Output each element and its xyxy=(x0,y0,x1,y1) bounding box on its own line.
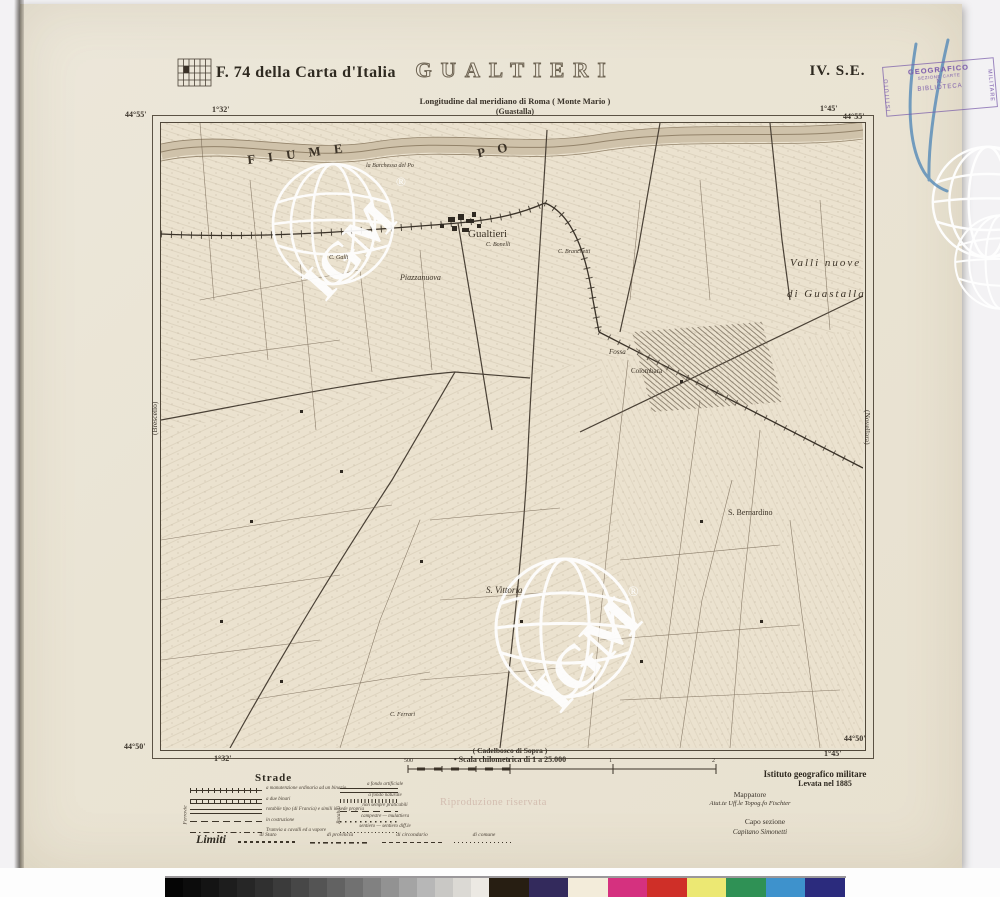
scale-tick: 2 xyxy=(712,758,715,764)
map-label: C. Galli xyxy=(329,255,348,261)
limiti-line-sample xyxy=(382,840,442,845)
credit-chief-name: Capitano Simonetti xyxy=(695,828,825,836)
adjacent-sheet-left: (Brescello) xyxy=(150,402,159,435)
gray-step xyxy=(165,878,183,897)
map-label: Colombara xyxy=(631,367,662,375)
corner-top-left-lon: 1°32' xyxy=(212,105,229,114)
limiti-label: di provincia xyxy=(310,832,370,838)
color-patch xyxy=(726,878,766,897)
map-title: GUALTIERI xyxy=(330,58,700,83)
map-label: S. Vittoria xyxy=(486,585,522,595)
gray-step xyxy=(327,878,345,897)
gray-step xyxy=(471,878,489,897)
gray-step xyxy=(273,878,291,897)
credit-institute: Istituto geografico militare xyxy=(730,769,900,779)
legend-strade-title: Strade xyxy=(255,772,292,784)
scale-tick: 1 xyxy=(609,758,612,764)
library-stamp: ISTITUTO GEOGRAFICO SEZIONE CARTE N. BIB… xyxy=(882,57,998,117)
legend-label: a fondo naturale xyxy=(340,793,430,798)
credit-mapper-title: Mappatore xyxy=(700,790,800,799)
legend-label: non sempre praticabili xyxy=(340,803,430,808)
map-label: S. Bernardino xyxy=(728,508,772,517)
scanned-map-page: IGM ® IGM ® F. 74 della C xyxy=(0,0,1000,897)
limiti-line-sample xyxy=(310,840,370,845)
map-label: Fossa xyxy=(609,348,626,356)
legend-line-sample xyxy=(190,820,262,825)
gray-step xyxy=(201,878,219,897)
gray-step xyxy=(255,878,273,897)
color-calibration-bar xyxy=(165,876,846,897)
gray-step xyxy=(183,878,201,897)
color-patch xyxy=(489,878,529,897)
gray-step xyxy=(363,878,381,897)
credit-mapper-name: Aiut.te Uff.le Topog.fo Fischter xyxy=(685,800,815,807)
gray-step xyxy=(435,878,453,897)
color-patch xyxy=(529,878,569,897)
adjacent-sheet-bottom: ( Cadelbosco di Sopra ) xyxy=(400,746,620,755)
quadrant-label: IV. S.E. xyxy=(790,63,885,80)
color-patch xyxy=(687,878,727,897)
corner-bottom-right-lon: 1°45' xyxy=(824,749,841,758)
limiti-line-sample xyxy=(454,840,514,845)
stamp-left: ISTITUTO xyxy=(884,78,893,111)
scale-tick: 500 xyxy=(404,758,413,764)
scale-bar xyxy=(408,764,716,774)
corner-top-right-lat: 44°55' xyxy=(843,112,864,121)
corner-bottom-left-lon: 1°32' xyxy=(214,754,231,763)
color-patch xyxy=(608,878,648,897)
corner-bottom-right-lat: 44°50' xyxy=(844,734,865,743)
adjacent-sheet-right: (Novellara) xyxy=(863,410,872,445)
index-grid-icon xyxy=(177,58,213,88)
stamp-right: MILITARE xyxy=(986,69,995,102)
gray-step xyxy=(381,878,399,897)
map-label: di Guastalla xyxy=(787,288,866,300)
map-label: C. Branchetti xyxy=(558,249,590,255)
gray-step xyxy=(399,878,417,897)
scale-tick: 0 xyxy=(506,758,509,764)
map-label: C. Ferrari xyxy=(390,712,415,718)
credit-survey-year: Levata nel 1885 xyxy=(760,779,890,788)
gray-step xyxy=(291,878,309,897)
map-label: Gualtieri xyxy=(468,228,507,240)
gray-step xyxy=(345,878,363,897)
corner-top-right-lon: 1°45' xyxy=(820,104,837,113)
gray-step xyxy=(417,878,435,897)
limiti-label: di comune xyxy=(454,832,514,838)
map-label: Piazzanuova xyxy=(400,273,441,282)
map-label: la Barchessa del Po xyxy=(366,163,414,169)
color-patch xyxy=(647,878,687,897)
gray-step xyxy=(453,878,471,897)
scale-caption: • Scala chilometrica di 1 a 25.000 xyxy=(400,755,620,764)
reproduction-notice: Riproduzione riservata xyxy=(440,797,547,808)
color-patch xyxy=(568,878,608,897)
legend-line-sample xyxy=(190,788,262,793)
longitude-note: Longitudine dal meridiano di Roma ( Mont… xyxy=(330,96,700,106)
corner-top-left-lat: 44°55' xyxy=(125,110,146,119)
map-label: Valli nuove xyxy=(790,257,861,269)
legend-label: a fondo artificiale xyxy=(340,782,430,787)
limiti-label: di Stato xyxy=(238,832,298,838)
legend-line-sample xyxy=(190,799,262,804)
corner-bottom-left-lat: 44°50' xyxy=(124,742,145,751)
limiti-label: di circondario xyxy=(382,832,442,838)
limiti-line-sample xyxy=(238,840,298,845)
globe-watermark-right xyxy=(933,147,1000,309)
map-label: C. Bonelli xyxy=(486,242,510,248)
legend-label: campestre — mulattiera xyxy=(340,814,430,819)
gray-step xyxy=(237,878,255,897)
color-patch xyxy=(805,878,845,897)
legend-line-sample xyxy=(190,809,262,814)
gray-step xyxy=(219,878,237,897)
gray-step xyxy=(309,878,327,897)
legend-bracket-ferrovie: Ferrovie xyxy=(183,805,189,824)
color-patch xyxy=(766,878,806,897)
map-neatline xyxy=(160,122,866,751)
credit-chief-title: Capo sezione xyxy=(710,817,820,826)
legend-label: sentiero — sentiero diff.le xyxy=(340,824,430,829)
legend-limiti-title: Limiti xyxy=(196,832,226,847)
